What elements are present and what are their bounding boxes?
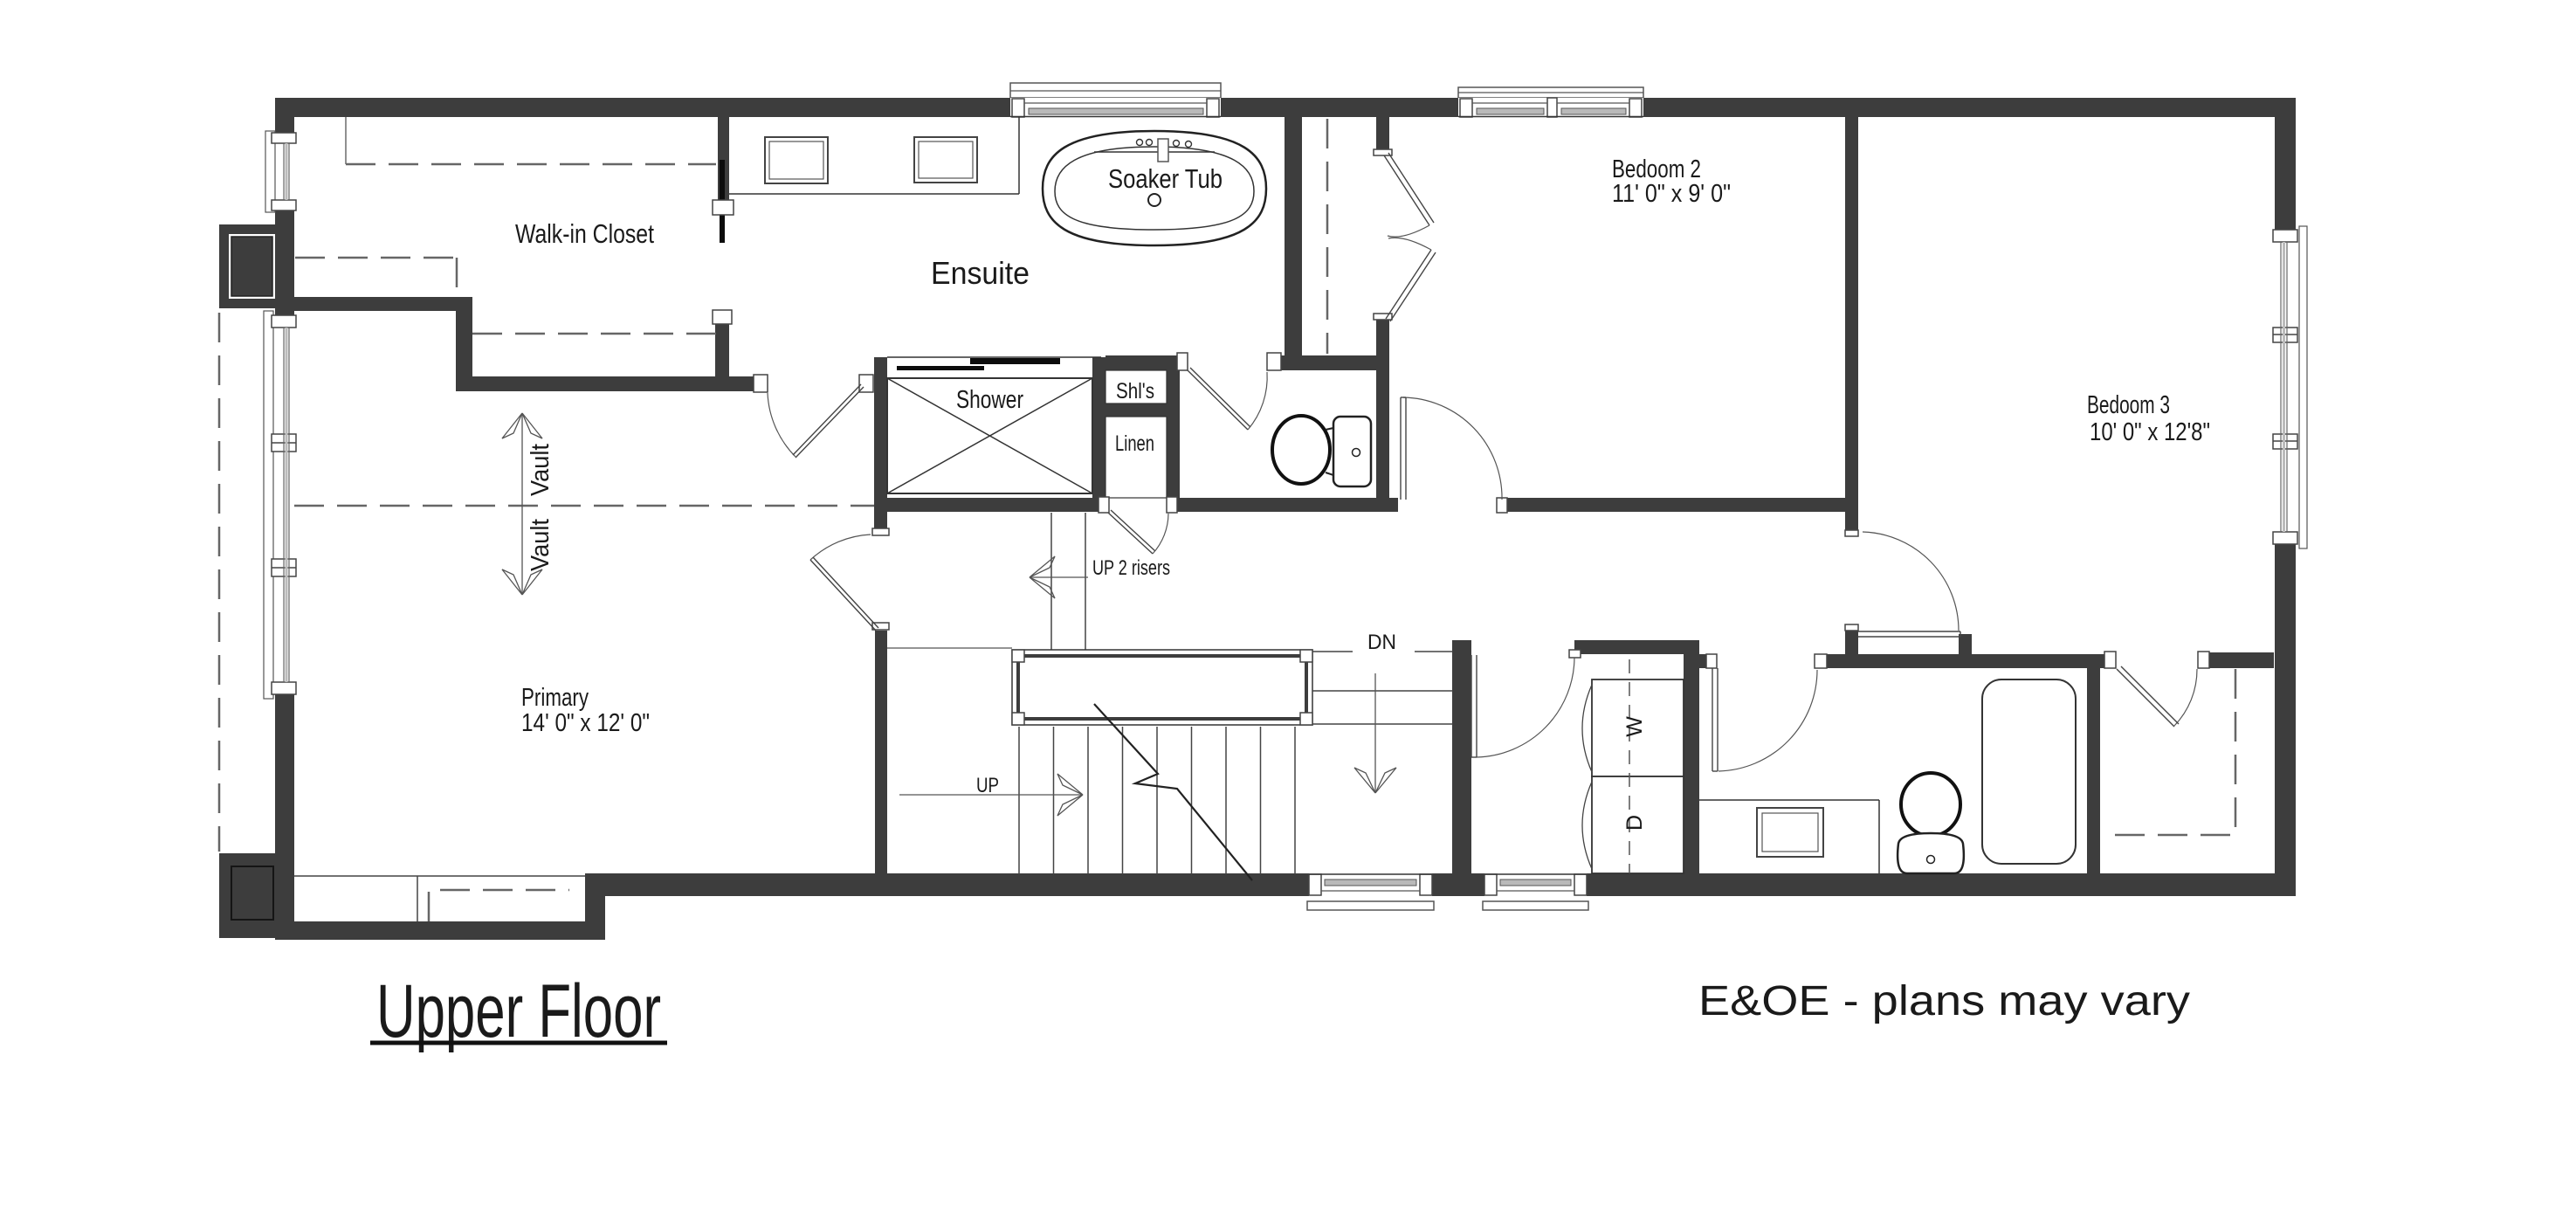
svg-text:E&OE - plans may vary: E&OE - plans may vary [1698,978,2190,1024]
svg-text:Vault: Vault [527,444,554,496]
svg-text:11' 0" x 9' 0": 11' 0" x 9' 0" [1612,180,1731,208]
svg-text:D: D [1622,815,1647,831]
svg-text:Soaker Tub: Soaker Tub [1108,163,1223,194]
svg-text:14' 0" x 12' 0": 14' 0" x 12' 0" [521,709,650,737]
svg-text:Bedoom 3: Bedoom 3 [2087,391,2170,419]
svg-text:Linen: Linen [1115,431,1154,456]
svg-text:DN: DN [1367,631,1396,654]
svg-text:10' 0" x 12'8": 10' 0" x 12'8" [2090,418,2210,446]
svg-text:UP 2 risers: UP 2 risers [1092,556,1170,580]
svg-text:Walk-in Closet: Walk-in Closet [515,218,654,249]
svg-text:Shl's: Shl's [1116,379,1154,404]
svg-text:W: W [1622,716,1647,737]
svg-text:Shower: Shower [956,386,1023,414]
svg-text:Ensuite: Ensuite [931,255,1030,291]
svg-text:UP: UP [976,774,999,797]
svg-text:Primary: Primary [521,684,589,712]
svg-text:Vault: Vault [527,519,554,571]
